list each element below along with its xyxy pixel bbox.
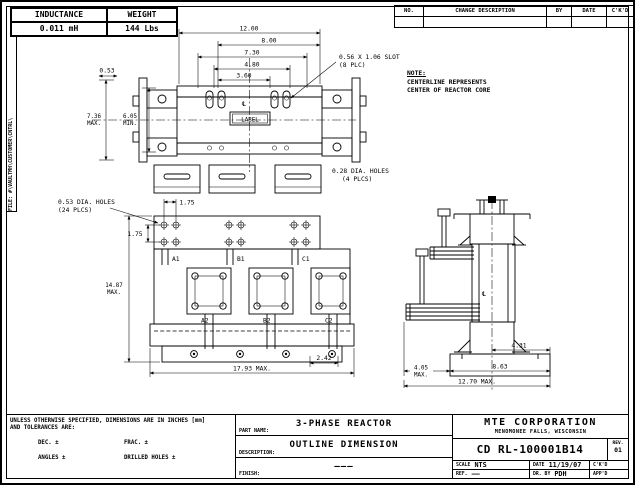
drawing-canvas: ℄ LABEL 12.00 8.00 7.30 4.80 3.60 0.53	[2, 2, 635, 420]
label-text: LABEL	[241, 117, 259, 123]
tolerance-drilled: DRILLED HOLES ±	[124, 455, 175, 462]
holes-callout: 0.53 DIA. HOLES	[58, 199, 115, 206]
dim-label: 12.00	[240, 26, 259, 33]
date-cell: DATE 11/19/07	[529, 461, 589, 469]
dim-label: 8.00	[261, 38, 276, 45]
top-view: ℄ LABEL 12.00 8.00 7.30 4.80 3.60 0.53	[87, 26, 400, 193]
dim-label: 1.75	[127, 231, 142, 238]
finish-label: FINISH:	[239, 471, 260, 477]
dim-label: 8.63	[492, 364, 507, 371]
dim-label: 12.70 MAX.	[458, 379, 496, 386]
rev-value: 01	[608, 446, 628, 454]
slot-callout: 0.56 X 1.06 SLOT	[339, 54, 400, 61]
dim-label: MAX.	[87, 121, 101, 127]
drawn-by-label: DR. BY	[533, 472, 550, 477]
mounting-foot	[275, 165, 321, 193]
dim-label: 1.75	[179, 200, 194, 207]
centerline-symbol: ℄	[482, 291, 487, 298]
dim-label: MAX.	[107, 290, 121, 296]
dim-label: 7.36	[87, 114, 101, 120]
terminal-label: A1	[172, 256, 180, 263]
dim-label: 6.05	[123, 114, 137, 120]
dim-label: 3.60	[236, 73, 251, 80]
company-name: MTE CORPORATION	[453, 417, 628, 429]
drawn-by-value: PDH	[554, 470, 566, 478]
mounting-foot	[209, 165, 255, 193]
finish-value: ———	[236, 462, 452, 472]
dim-label: MIN.	[123, 121, 137, 127]
ckd-label: C'K'D	[593, 463, 607, 468]
tolerance-line: UNLESS OTHERWISE SPECIFIED, DIMENSIONS A…	[10, 418, 232, 425]
dim-label: 4.31	[511, 343, 526, 350]
ref-cell: REF. ——	[453, 470, 529, 478]
description-label: DESCRIPTION:	[239, 450, 275, 456]
date-label: DATE	[533, 463, 545, 468]
tolerance-line: AND TOLERANCES ARE:	[10, 425, 232, 432]
company-location: MENOMONEE FALLS, WISCONSIN	[453, 429, 628, 435]
ref-label: REF.	[456, 472, 468, 477]
front-view: 0.53 DIA. HOLES (24 PLCS)	[58, 199, 354, 377]
dim-label: 2.42	[316, 355, 331, 362]
drawing-number: CD RL-100001B14	[453, 439, 607, 460]
dim-label: 7.30	[244, 50, 259, 57]
dim-label: 4.80	[244, 62, 259, 69]
part-info-block: 3-PHASE REACTOR PART NAME: OUTLINE DIMEN…	[235, 415, 452, 478]
tolerance-frac: FRAC. ±	[124, 440, 148, 447]
mounting-foot	[154, 165, 200, 193]
title-block: MTE CORPORATION MENOMONEE FALLS, WISCONS…	[452, 415, 628, 478]
holes-callout: (4 PLCS)	[342, 176, 372, 183]
coil	[249, 268, 293, 314]
tolerance-angles: ANGLES ±	[38, 455, 124, 462]
dim-label: 0.53	[99, 68, 114, 75]
ckd-cell: C'K'D	[589, 461, 628, 469]
side-view: ℄ 4.31 4.05 MAX. 8.63 12.70 MAX.	[404, 196, 550, 390]
coil	[311, 268, 350, 314]
coil	[187, 268, 231, 314]
dim-label: MAX.	[414, 373, 428, 379]
approved-label: APP'D	[593, 472, 607, 477]
ref-value: ——	[472, 470, 480, 478]
slot-callout: (8 PLC)	[339, 62, 366, 69]
approved-cell: APP'D	[589, 470, 628, 478]
scale-cell: SCALE NTS	[453, 461, 529, 469]
drawing-sheet: INDUCTANCE WEIGHT 0.011 mH 144 Lbs FILE:…	[0, 0, 635, 485]
scale-value: NTS	[474, 461, 486, 469]
title-strip: UNLESS OTHERWISE SPECIFIED, DIMENSIONS A…	[7, 414, 628, 478]
date-value: 11/19/07	[549, 461, 582, 469]
terminal-label: B1	[237, 256, 245, 263]
dim-label: 14.87	[105, 283, 123, 289]
terminal-label: C1	[302, 256, 310, 263]
holes-callout: (24 PLCS)	[58, 207, 92, 214]
part-name-label: PART NAME:	[239, 428, 269, 434]
rev-cell: REV. 01	[607, 439, 628, 460]
centerline-symbol: ℄	[242, 101, 247, 108]
tolerance-dec: DEC. ±	[38, 440, 124, 447]
scale-label: SCALE	[456, 463, 470, 468]
tolerance-block: UNLESS OTHERWISE SPECIFIED, DIMENSIONS A…	[7, 415, 235, 478]
plate-holes	[159, 220, 311, 247]
holes-callout: 0.28 DIA. HOLES	[332, 168, 389, 175]
dim-label: 4.05	[414, 366, 428, 372]
drawn-by-cell: DR. BY PDH	[529, 470, 589, 478]
dim-label: 17.93 MAX.	[233, 366, 271, 373]
